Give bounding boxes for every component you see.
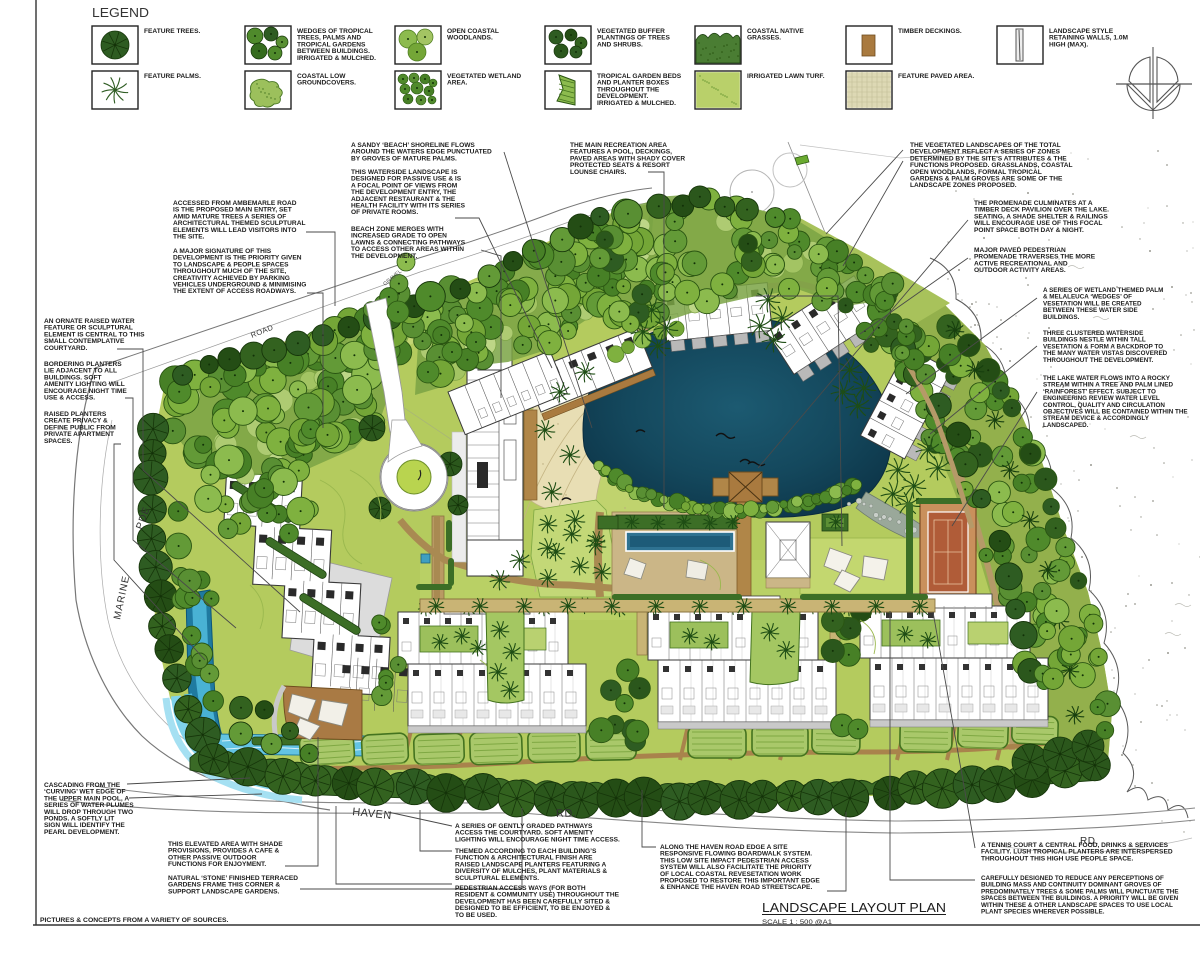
svg-text:GROUNDCOVERS.: GROUNDCOVERS. — [297, 80, 356, 87]
svg-text:TO BE USED.: TO BE USED. — [455, 912, 497, 919]
svg-text:IRRIGATED & MULCHED.: IRRIGATED & MULCHED. — [597, 100, 676, 107]
svg-text:SCULPTURAL ELEMENTS.: SCULPTURAL ELEMENTS. — [455, 875, 539, 882]
svg-text:PEARL DEVELOPMENT.: PEARL DEVELOPMENT. — [44, 829, 120, 836]
svg-text:THROUGHOUT THE DEVELOPMENT.: THROUGHOUT THE DEVELOPMENT. — [1043, 357, 1153, 364]
svg-text:GRASSES.: GRASSES. — [747, 35, 781, 42]
svg-text:IRRIGATED LAWN TURF.: IRRIGATED LAWN TURF. — [747, 73, 825, 80]
svg-text:LOUNSE CHAIRS.: LOUNSE CHAIRS. — [570, 169, 627, 176]
svg-text:SPACES.: SPACES. — [44, 438, 73, 445]
svg-text:FEATURE TREES.: FEATURE TREES. — [144, 28, 200, 35]
svg-text:WOODLANDS.: WOODLANDS. — [447, 35, 493, 42]
svg-text:TIMBER DECKINGS.: TIMBER DECKINGS. — [898, 28, 962, 35]
svg-text:PLANT SPECIES WHEREVER POSSIBL: PLANT SPECIES WHEREVER POSSIBLE. — [981, 909, 1105, 916]
svg-text:THE DEVELOPMENT.: THE DEVELOPMENT. — [351, 253, 417, 260]
svg-text:LANDSCAPE LAYOUT PLAN: LANDSCAPE LAYOUT PLAN — [762, 900, 946, 915]
svg-text:OUTDOOR ACTIVITY AREAS.: OUTDOOR ACTIVITY AREAS. — [974, 267, 1066, 274]
svg-text:FEATURE PAVED AREA.: FEATURE PAVED AREA. — [898, 73, 974, 80]
svg-text:PICTURES & CONCEPTS FROM A VAR: PICTURES & CONCEPTS FROM A VARIETY OF SO… — [40, 917, 229, 924]
svg-text:BUILDINGS.: BUILDINGS. — [1043, 314, 1080, 321]
svg-text:COURTYARD.: COURTYARD. — [44, 345, 88, 352]
svg-text:THE EXTENT OF ACCESS ROADWAYS.: THE EXTENT OF ACCESS ROADWAYS. — [173, 288, 296, 295]
svg-text:SUPPORT LANDSCAPE GARDENS.: SUPPORT LANDSCAPE GARDENS. — [168, 888, 280, 895]
svg-text:USE & ACCESS.: USE & ACCESS. — [44, 395, 95, 402]
svg-text:RD.: RD. — [556, 807, 577, 820]
svg-text:IRRIGATED & MULCHED.: IRRIGATED & MULCHED. — [297, 55, 376, 62]
svg-text:AREA.: AREA. — [447, 80, 468, 87]
svg-text:POINT SPACE BOTH DAY & NIGHT.: POINT SPACE BOTH DAY & NIGHT. — [974, 227, 1084, 234]
svg-text:LIGHTING WILL ENCOURAGE NIGHT: LIGHTING WILL ENCOURAGE NIGHT TIME ACCES… — [455, 836, 620, 843]
svg-text:THROUGHOUT THIS HIGH USE PEOPL: THROUGHOUT THIS HIGH USE PEOPLE SPACE. — [981, 855, 1133, 862]
svg-text:FEATURE PALMS.: FEATURE PALMS. — [144, 73, 201, 80]
svg-text:OF PRIVATE ROOMS.: OF PRIVATE ROOMS. — [351, 209, 418, 216]
svg-text:LANDSCAPE ZONES PROPOSED.: LANDSCAPE ZONES PROPOSED. — [910, 182, 1017, 189]
svg-text:THE SITE.: THE SITE. — [173, 234, 205, 241]
svg-text:& ENHANCE THE HAVEN ROAD STREE: & ENHANCE THE HAVEN ROAD STREETSCAPE. — [660, 884, 812, 891]
svg-text:FUNCTIONS FOR ENJOYMENT.: FUNCTIONS FOR ENJOYMENT. — [168, 861, 266, 868]
svg-text:HIGH (MAX).: HIGH (MAX). — [1049, 41, 1088, 48]
svg-text:LANDSCAPED.: LANDSCAPED. — [1043, 422, 1089, 429]
svg-text:BY GROVES OF MATURE PALMS.: BY GROVES OF MATURE PALMS. — [351, 155, 457, 162]
svg-text:LEGEND: LEGEND — [92, 5, 149, 20]
svg-text:AND SHRUBS.: AND SHRUBS. — [597, 41, 643, 48]
